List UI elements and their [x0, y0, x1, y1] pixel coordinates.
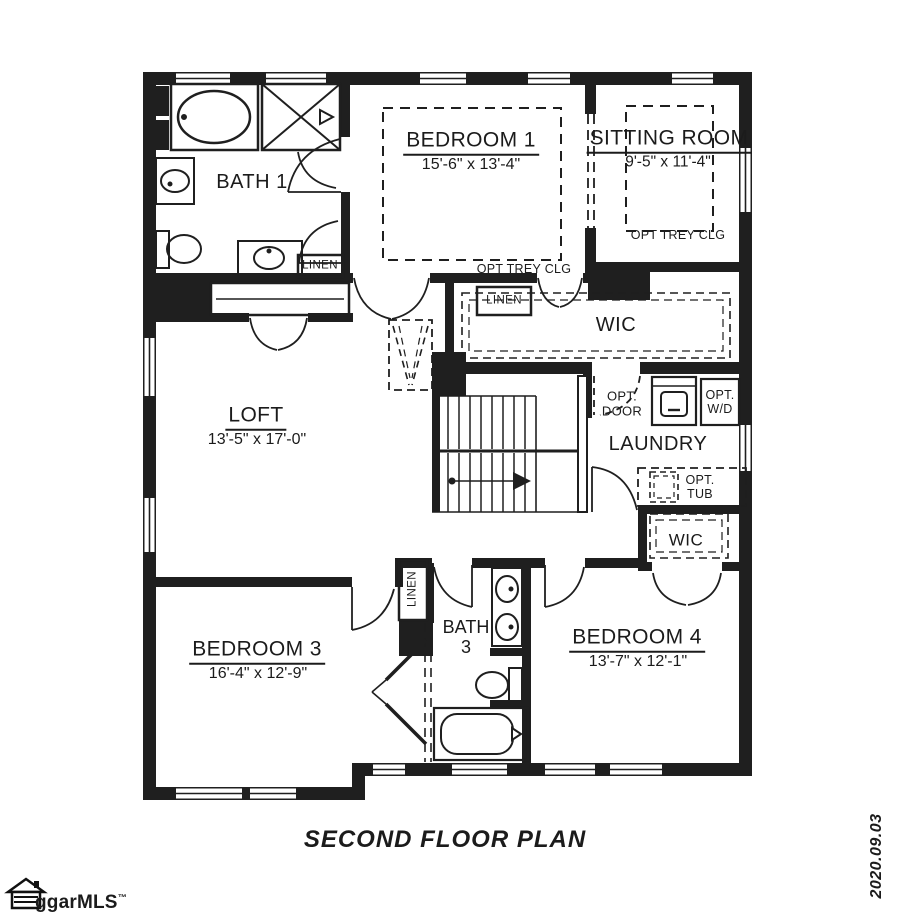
floor-plan-page: BATH 1 BEDROOM 1 15'-6" x 13'-4" OPT TRE…: [0, 0, 900, 916]
label-linen-bath3: LINEN: [407, 571, 420, 607]
annotation-opt-wd: OPT. W/D: [706, 388, 735, 416]
room-dims-bedroom3: 16'-4" x 12'-9": [209, 665, 307, 683]
annotation-opt-trey-bedroom1: OPT TREY CLG: [477, 262, 572, 276]
room-dims-sitting-room: 9'-5" x 11'-4": [625, 153, 711, 170]
watermark-logo: ggarMLS™: [4, 876, 127, 914]
room-label-wic-master: WIC: [596, 314, 636, 336]
watermark-text: ggarMLS™: [35, 892, 127, 914]
room-label-sitting-room: SITTING ROOM: [587, 127, 752, 154]
room-label-laundry: LAUNDRY: [609, 433, 708, 455]
room-label-wic-bedroom4: WIC: [669, 530, 704, 549]
room-dims-bedroom4: 13'-7" x 12'-1": [589, 653, 687, 671]
room-dims-bedroom1: 15'-6" x 13'-4": [422, 156, 520, 174]
room-dims-loft: 13'-5" x 17'-0": [208, 431, 306, 449]
room-label-bedroom3: BEDROOM 3: [189, 638, 325, 665]
stairs: [432, 376, 587, 512]
label-linen-bath1: LINEN: [302, 260, 338, 273]
annotation-opt-door: OPT. DOOR: [602, 389, 642, 418]
room-label-loft: LOFT: [225, 404, 286, 431]
room-label-bath1: BATH 1: [216, 171, 288, 193]
room-label-bath3: BATH 3: [443, 617, 490, 657]
plan-date: 2020.09.03: [868, 813, 886, 898]
room-label-bedroom4: BEDROOM 4: [569, 626, 705, 653]
room-label-bedroom1: BEDROOM 1: [403, 129, 539, 156]
annotation-opt-tub: OPT. TUB: [686, 473, 715, 501]
annotation-opt-trey-sitting: OPT TREY CLG: [631, 228, 726, 242]
label-linen-hall: LINEN: [486, 295, 522, 308]
plan-title: SECOND FLOOR PLAN: [304, 826, 586, 854]
